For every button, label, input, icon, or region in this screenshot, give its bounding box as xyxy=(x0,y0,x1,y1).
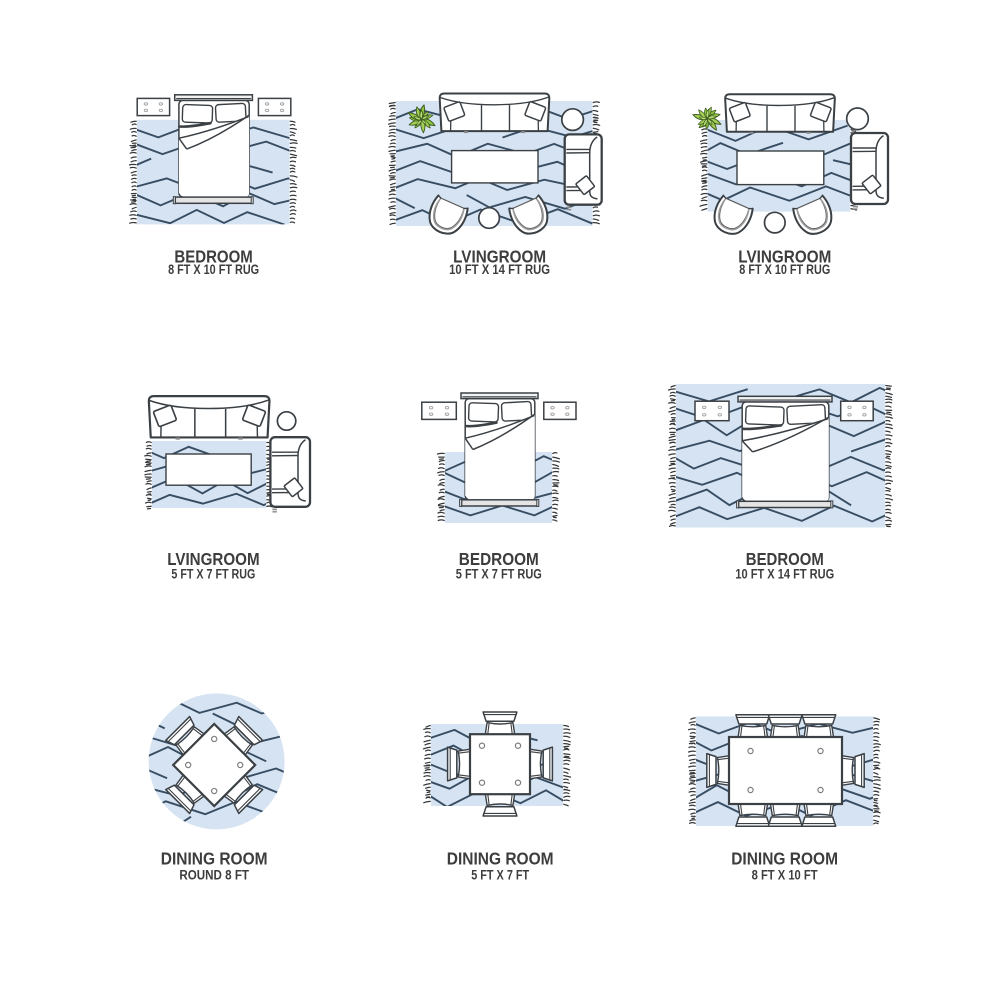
svg-text:DINING ROOM: DINING ROOM xyxy=(447,848,554,868)
svg-text:10 FT X 14 FT RUG: 10 FT X 14 FT RUG xyxy=(449,262,550,277)
svg-text:DINING ROOM: DINING ROOM xyxy=(161,848,268,868)
svg-text:5 FT X 7 FT RUG: 5 FT X 7 FT RUG xyxy=(171,567,255,582)
svg-text:DINING ROOM: DINING ROOM xyxy=(731,848,838,868)
svg-text:5 FT X 7 FT RUG: 5 FT X 7 FT RUG xyxy=(456,567,542,582)
svg-text:5 FT X 7 FT: 5 FT X 7 FT xyxy=(471,868,530,883)
svg-text:8 FT X 10 FT RUG: 8 FT X 10 FT RUG xyxy=(739,262,830,277)
svg-text:10 FT X 14 FT RUG: 10 FT X 14 FT RUG xyxy=(735,567,834,582)
svg-text:8 FT X 10 FT RUG: 8 FT X 10 FT RUG xyxy=(168,262,259,277)
svg-text:8 FT X 10 FT: 8 FT X 10 FT xyxy=(752,868,819,883)
svg-text:ROUND 8 FT: ROUND 8 FT xyxy=(179,868,249,883)
